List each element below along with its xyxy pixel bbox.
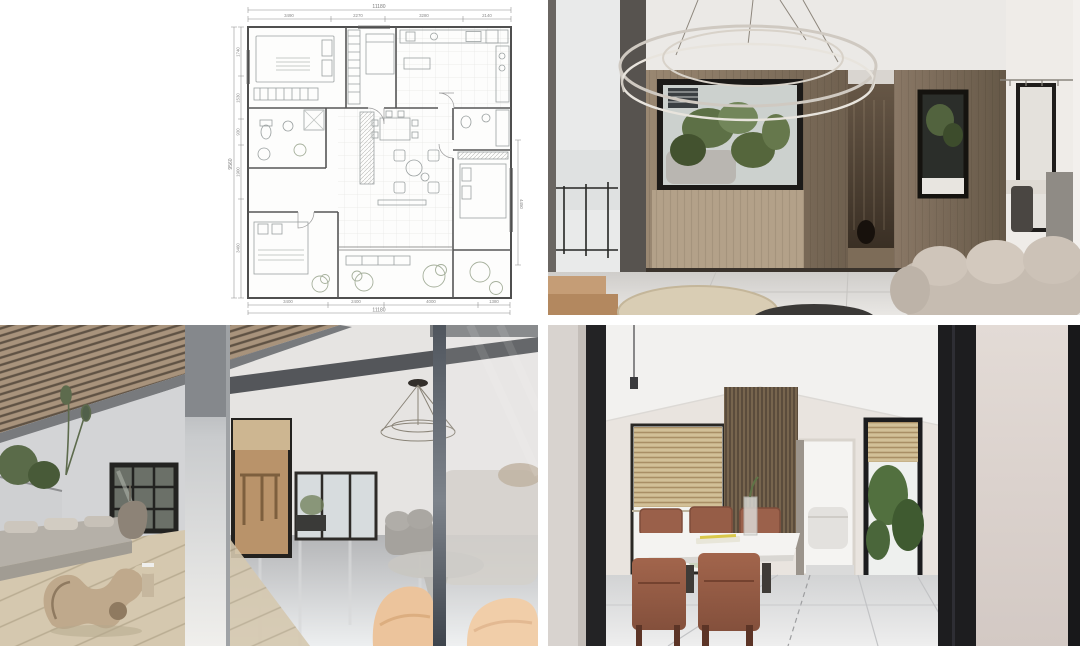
panel-dining-room-render (548, 325, 1080, 646)
nook-chair (1011, 186, 1033, 232)
panel-floor-plan: 11180 3490 2270 3280 2140 9560 1740 1530… (0, 0, 540, 315)
dim-left-total: 9560 (228, 158, 234, 169)
dim-bottom-seg-2: 2400 (351, 299, 361, 304)
study-nook-opening (1000, 0, 1080, 272)
chair-shadow (50, 625, 142, 637)
window-mullion (586, 325, 606, 646)
door-frame-column (620, 0, 646, 272)
balcony-glass-door (548, 0, 646, 272)
terrace-scene (0, 325, 538, 646)
hallway-opening (848, 70, 894, 272)
door-frame-edge (548, 0, 556, 272)
back-kitchen-cabinet (296, 515, 326, 531)
accent-window (920, 92, 966, 196)
dim-top-seg-2: 2270 (353, 13, 363, 18)
dim-left-seg-3: 930 (236, 128, 241, 136)
dining-chairs-back (640, 507, 780, 535)
dining-glimpse (233, 420, 290, 556)
bedroom-doorway (796, 440, 854, 575)
right-black-frame (938, 325, 976, 646)
right-edge-frame (1068, 325, 1080, 646)
right-wall (976, 325, 1068, 646)
floor-plan-drawing: 11180 3490 2270 3280 2140 9560 1740 1530… (0, 0, 540, 315)
glass-mullion (433, 325, 446, 646)
interior-garden-window (660, 82, 800, 188)
dim-right-seg-1: 4450 (519, 199, 524, 209)
dim-top-total: 11180 (372, 4, 385, 10)
gray-armchair (385, 509, 433, 555)
dim-top-seg-3: 3280 (419, 13, 429, 18)
dim-bottom-total: 11180 (372, 308, 385, 314)
dim-top-seg-1: 3490 (284, 13, 294, 18)
dim-bottom-seg-3: 4000 (426, 299, 436, 304)
column (185, 325, 230, 646)
bed (808, 507, 848, 549)
plan-group: 11180 3490 2270 3280 2140 9560 1740 1530… (228, 4, 524, 315)
dim-left-seg-2: 1530 (236, 93, 241, 103)
panel-terrace-render (0, 325, 538, 646)
hallway-vase (857, 220, 875, 244)
back-glass-wall (296, 473, 376, 539)
dim-bottom-seg-4: 1380 (489, 299, 499, 304)
open-door-leaf (796, 440, 804, 575)
living-room-scene (548, 0, 1080, 315)
kitchen-floor-tiles (396, 27, 511, 108)
cabinet-grain (652, 190, 804, 272)
dim-top-seg-4: 2140 (482, 13, 492, 18)
panel-living-room-render (548, 0, 1080, 315)
interior-view (230, 325, 538, 646)
dining-room-scene (548, 325, 1080, 646)
right-plant-window (866, 420, 924, 578)
dim-bottom-seg-1: 3400 (283, 299, 293, 304)
dim-left-seg-1: 1740 (236, 47, 241, 57)
living-floor-tiles (338, 108, 453, 248)
dim-left-seg-5: 3460 (236, 243, 241, 253)
dim-left-seg-4: 1900 (236, 167, 241, 177)
design-collage: 11180 3490 2270 3280 2140 9560 1740 1530… (0, 0, 1080, 646)
